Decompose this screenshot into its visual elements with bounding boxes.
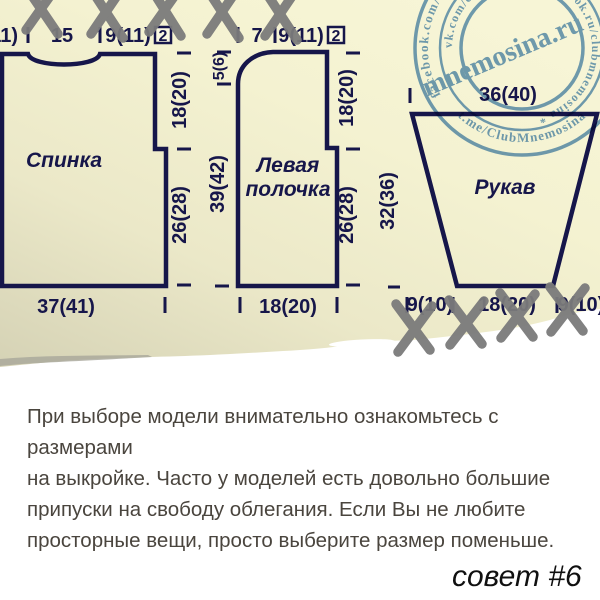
piece-name-label: Спинка: [26, 149, 102, 172]
piece-name-label: Рукав: [475, 176, 536, 199]
measurement-label: 18(20): [169, 71, 191, 129]
measurement-label: 37(41): [37, 296, 95, 318]
tip-caption: совет #6: [452, 560, 592, 594]
measurement-label: 26(28): [336, 186, 358, 244]
piece-name-label: полочка: [245, 178, 330, 201]
measurement-label: 26(28): [169, 186, 191, 244]
measurement-label: 39(42): [207, 155, 229, 213]
measurement-label: 18(20): [336, 69, 358, 127]
piece-name-label: Левая: [255, 154, 320, 177]
measurement-label: 2: [159, 28, 168, 45]
note-line: припуски на свободу облегания. Если Вы н…: [27, 494, 592, 525]
screenshot-root: 11)159(11)279(11)236(40)СпинкаЛеваяполоч…: [0, 0, 600, 600]
note-line: При выборе модели внимательно ознакомьте…: [27, 401, 592, 463]
size-note-text: При выборе модели внимательно ознакомьте…: [27, 401, 592, 556]
note-line: просторные вещи, просто выберите размер …: [27, 525, 592, 556]
measurement-label: 32(36): [377, 172, 399, 230]
measurement-label: 2: [332, 28, 341, 45]
measurement-label: 36(40): [479, 84, 537, 106]
measurement-label: 11): [0, 25, 18, 47]
measurement-label: 5(6): [211, 52, 228, 80]
note-line: на выкройке. Часто у моделей есть доволь…: [27, 463, 592, 494]
measurement-label: 18(20): [259, 296, 317, 318]
